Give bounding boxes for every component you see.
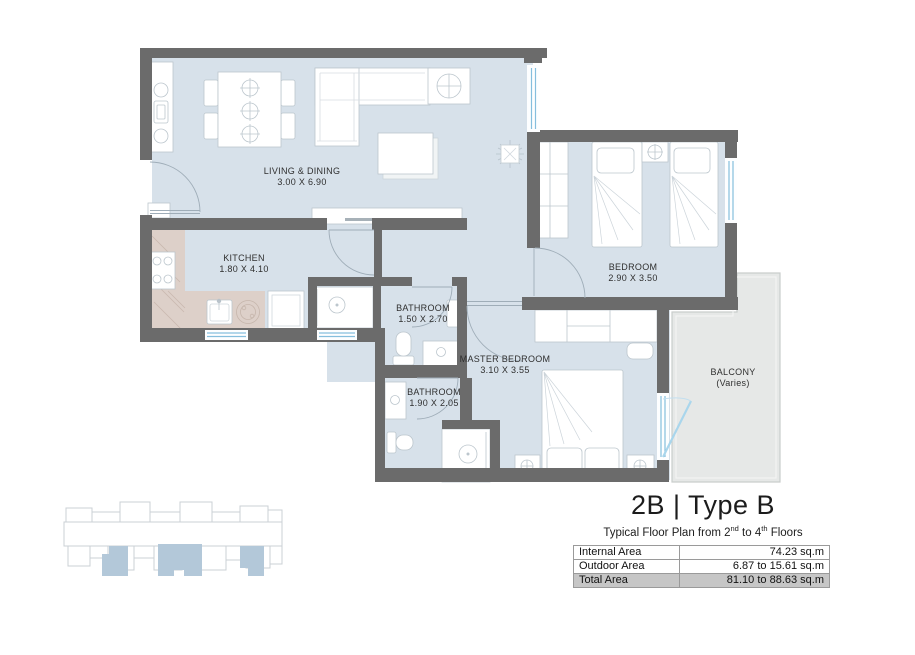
side-table-lamp: [428, 68, 470, 104]
room-dims: 2.90 X 3.50: [608, 273, 657, 284]
room-label-bathroom-1: BATHROOM 1.50 X 2.70: [396, 303, 450, 325]
area-value: 74.23 sq.m: [680, 545, 830, 559]
bathroom2-sink: [385, 382, 406, 419]
room-dims: 3.00 X 6.90: [264, 177, 341, 188]
subtitle-text: to 4: [739, 527, 761, 539]
master-bed: [542, 370, 623, 477]
bedroom-bed-2: [670, 142, 718, 247]
kitchen-window: [205, 330, 248, 340]
area-table-row-total: Total Area 81.10 to 88.63 sq.m: [574, 573, 830, 587]
bathroom1-shower: [313, 287, 373, 328]
room-label-balcony: BALCONY (Varies): [710, 367, 755, 389]
bathroom1-sink: [423, 341, 459, 367]
area-table-row-outdoor: Outdoor Area 6.87 to 15.61 sq.m: [574, 559, 830, 573]
title-block: 2B | Type B Typical Floor Plan from 2nd …: [558, 490, 848, 588]
bedroom-nightstand: [642, 142, 668, 162]
room-dims: 1.80 X 4.10: [219, 264, 268, 275]
stove: [150, 252, 175, 289]
area-label: Total Area: [574, 573, 680, 587]
fridge: [268, 291, 304, 330]
living-side-counter: [151, 62, 173, 152]
bedroom-window: [725, 158, 737, 223]
room-name: LIVING & DINING: [264, 166, 341, 177]
plan-subtitle: Typical Floor Plan from 2nd to 4th Floor…: [558, 524, 848, 539]
plant: [496, 140, 524, 168]
unit-type-title: 2B | Type B: [558, 490, 848, 520]
room-dims: 3.10 X 3.55: [460, 365, 551, 376]
room-label-bedroom: BEDROOM 2.90 X 3.50: [608, 262, 657, 284]
room-name: BATHROOM: [407, 387, 461, 398]
area-label: Internal Area: [574, 545, 680, 559]
room-label-bathroom-2: BATHROOM 1.90 X 2.05: [407, 387, 461, 409]
area-label: Outdoor Area: [574, 559, 680, 573]
bathroom1-window: [317, 330, 357, 340]
room-dims: 1.50 X 2.70: [396, 314, 450, 325]
room-name: BEDROOM: [608, 262, 657, 273]
subtitle-text: Typical Floor Plan from 2: [603, 527, 730, 539]
area-value: 6.87 to 15.61 sq.m: [680, 559, 830, 573]
living-window: [527, 65, 540, 132]
subtitle-text: Floors: [768, 527, 803, 539]
room-label-master-bedroom: MASTER BEDROOM 3.10 X 3.55: [460, 354, 551, 376]
floor-plan: LIVING & DINING 3.00 X 6.90 KITCHEN 1.80…: [140, 40, 785, 495]
room-name: KITCHEN: [219, 253, 268, 264]
room-name: MASTER BEDROOM: [460, 354, 551, 365]
area-table: Internal Area 74.23 sq.m Outdoor Area 6.…: [573, 545, 830, 588]
kitchen-sink: [207, 299, 232, 324]
area-value: 81.10 to 88.63 sq.m: [680, 573, 830, 587]
subtitle-ordinal: nd: [731, 524, 739, 533]
room-name: BALCONY: [710, 367, 755, 378]
key-plan-drawing: [62, 496, 284, 596]
room-label-kitchen: KITCHEN 1.80 X 4.10: [219, 253, 268, 275]
area-table-row-internal: Internal Area 74.23 sq.m: [574, 545, 830, 559]
bedroom-bed-1: [592, 142, 642, 247]
room-dims: (Varies): [710, 378, 755, 389]
key-plan: [62, 496, 284, 596]
floor-plan-sheet: LIVING & DINING 3.00 X 6.90 KITCHEN 1.80…: [0, 0, 915, 655]
room-label-living-dining: LIVING & DINING 3.00 X 6.90: [264, 166, 341, 188]
coffee-table: [378, 133, 438, 179]
room-dims: 1.90 X 2.05: [407, 398, 461, 409]
bathroom1-toilet: [393, 332, 414, 365]
dining-table: [218, 72, 281, 147]
room-name: BATHROOM: [396, 303, 450, 314]
